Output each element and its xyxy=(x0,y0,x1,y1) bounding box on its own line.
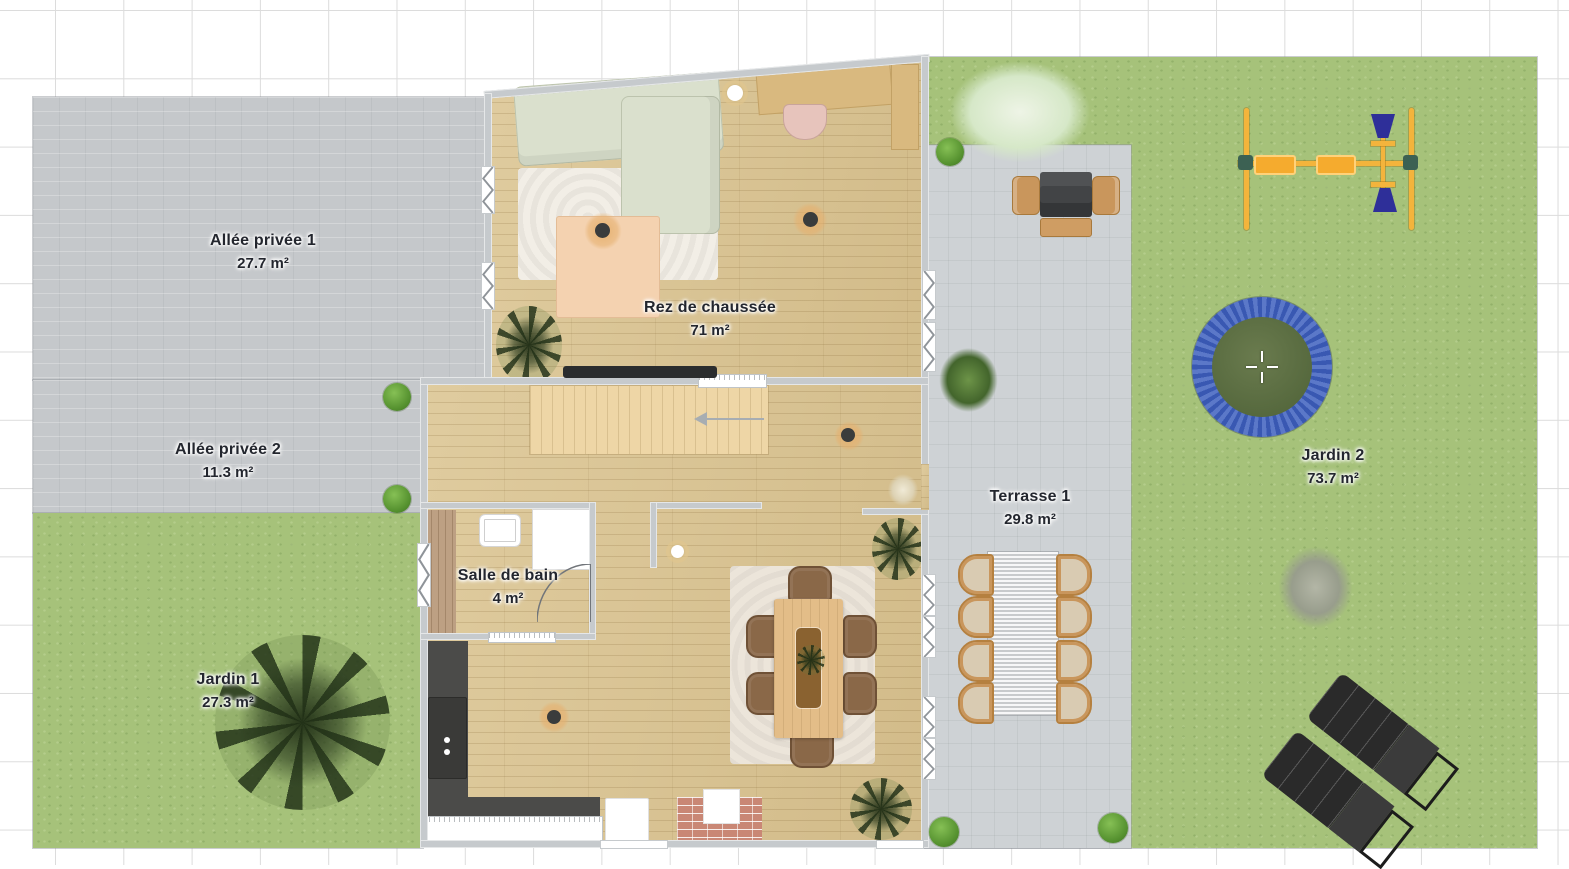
ceiling-light[interactable] xyxy=(727,85,743,101)
glider-crossbar xyxy=(1371,141,1395,146)
wall-shelf[interactable] xyxy=(891,64,919,150)
zone-area: 73.7 m² xyxy=(1302,470,1365,487)
terrace-chair[interactable] xyxy=(1056,682,1092,724)
terrace-chair[interactable] xyxy=(1056,596,1092,638)
dining-chair[interactable] xyxy=(788,566,832,603)
dry-shrub[interactable] xyxy=(1268,535,1363,640)
bathroom-sink[interactable] xyxy=(479,514,521,547)
trampoline-mat xyxy=(1212,317,1312,417)
glider-crossbar xyxy=(1371,182,1395,187)
shower[interactable] xyxy=(532,509,591,570)
bush[interactable] xyxy=(929,817,959,847)
zone-area: 71 m² xyxy=(644,322,776,339)
cursor-crosshair-icon xyxy=(1246,366,1257,368)
oven-knob-icon xyxy=(444,749,450,755)
garden-tree[interactable] xyxy=(932,340,1005,420)
swing-seat[interactable] xyxy=(1316,155,1356,175)
palm-tree[interactable] xyxy=(215,635,390,810)
oven-knob-icon xyxy=(444,737,450,743)
side-table[interactable] xyxy=(803,212,818,227)
zone-name: Allée privée 1 xyxy=(210,232,316,250)
zone-name: Allée privée 2 xyxy=(175,441,281,459)
potted-plant[interactable] xyxy=(850,778,912,840)
zone-area: 27.3 m² xyxy=(197,694,260,711)
wall-interior-hall[interactable] xyxy=(420,377,929,385)
terrace-chair[interactable] xyxy=(958,640,994,682)
wall-interior-horizontal[interactable] xyxy=(650,502,762,509)
potted-plant[interactable] xyxy=(496,306,562,384)
zone-area: 4 m² xyxy=(458,590,558,607)
zone-area: 11.3 m² xyxy=(175,464,281,481)
tv[interactable] xyxy=(563,366,717,378)
cursor-crosshair-icon xyxy=(1267,366,1278,368)
folding-door-icon[interactable] xyxy=(922,270,936,320)
label-allee-privee-2: Allée privée 2 11.3 m² xyxy=(175,441,281,481)
folding-door-icon[interactable] xyxy=(922,738,936,780)
window[interactable] xyxy=(600,840,668,849)
zone-name: Jardin 2 xyxy=(1302,447,1365,465)
folding-door-icon[interactable] xyxy=(922,574,936,616)
zone-name: Salle de bain xyxy=(458,567,558,585)
bush[interactable] xyxy=(383,383,411,411)
dining-chair[interactable] xyxy=(843,672,877,715)
zone-area: 29.8 m² xyxy=(990,511,1071,528)
folding-door-icon[interactable] xyxy=(417,543,431,607)
wall-left-main[interactable] xyxy=(420,377,428,848)
table-plant[interactable] xyxy=(797,645,825,675)
staircase[interactable] xyxy=(530,386,768,454)
ceiling-light[interactable] xyxy=(671,545,684,558)
cursor-crosshair-icon xyxy=(1261,372,1263,383)
side-table[interactable] xyxy=(841,428,855,442)
terrace-chair[interactable] xyxy=(1056,554,1092,596)
swing-connector xyxy=(1238,155,1253,170)
folding-door-icon[interactable] xyxy=(922,696,936,738)
terrace-chair[interactable] xyxy=(958,596,994,638)
terrace-chair[interactable] xyxy=(958,554,994,596)
bistro-chair[interactable] xyxy=(1092,176,1120,215)
cursor-crosshair-icon xyxy=(1261,351,1263,362)
bush[interactable] xyxy=(936,138,964,166)
dining-chair[interactable] xyxy=(843,615,877,658)
bistro-bench[interactable] xyxy=(1040,218,1092,237)
swing-seat[interactable] xyxy=(1254,155,1296,175)
label-jardin-1: Jardin 1 27.3 m² xyxy=(197,671,260,711)
bush[interactable] xyxy=(1098,813,1128,843)
folding-door-icon[interactable] xyxy=(481,166,495,214)
folding-door-icon[interactable] xyxy=(481,262,495,310)
label-jardin-2: Jardin 2 73.7 m² xyxy=(1302,447,1365,487)
terrace-chair[interactable] xyxy=(958,682,994,724)
floor-plan-canvas[interactable]: Allée privée 1 27.7 m² Allée privée 2 11… xyxy=(0,0,1569,865)
label-allee-privee-1: Allée privée 1 27.7 m² xyxy=(210,232,316,272)
sofa-chaise-section[interactable] xyxy=(621,96,720,234)
side-table[interactable] xyxy=(547,710,561,724)
bistro-chair[interactable] xyxy=(1012,176,1040,215)
pampas-plant[interactable] xyxy=(884,470,922,510)
bush[interactable] xyxy=(383,485,411,513)
zone-name: Rez de chaussée xyxy=(644,299,776,317)
wall-interior-vertical[interactable] xyxy=(650,502,657,568)
wall-bathroom-top[interactable] xyxy=(420,502,596,509)
door-opening[interactable] xyxy=(921,464,929,510)
wall-left-top-room[interactable] xyxy=(484,93,492,383)
terrace-chair[interactable] xyxy=(1056,640,1092,682)
fireplace-hearth[interactable] xyxy=(703,789,740,824)
wall-bottom[interactable] xyxy=(420,840,929,848)
stairs-arrow-icon xyxy=(694,412,707,426)
label-salle-de-bain: Salle de bain 4 m² xyxy=(458,567,558,607)
window[interactable] xyxy=(876,840,924,849)
side-table[interactable] xyxy=(595,223,610,238)
folding-door-icon[interactable] xyxy=(922,616,936,658)
window[interactable] xyxy=(488,632,556,643)
swing-connector xyxy=(1403,155,1418,170)
wall-stub-right[interactable] xyxy=(862,508,929,515)
zone-name: Jardin 1 xyxy=(197,671,260,689)
label-rez-de-chaussee: Rez de chaussée 71 m² xyxy=(644,299,776,339)
terrace-table[interactable] xyxy=(988,552,1058,715)
zone-name: Terrasse 1 xyxy=(990,488,1071,506)
bistro-table[interactable] xyxy=(1040,172,1092,217)
palm-plant[interactable] xyxy=(872,518,924,580)
zone-area: 27.7 m² xyxy=(210,255,316,272)
stairs-direction-line xyxy=(706,418,764,420)
kitchen-island[interactable] xyxy=(605,798,649,844)
label-terrasse-1: Terrasse 1 29.8 m² xyxy=(990,488,1071,528)
